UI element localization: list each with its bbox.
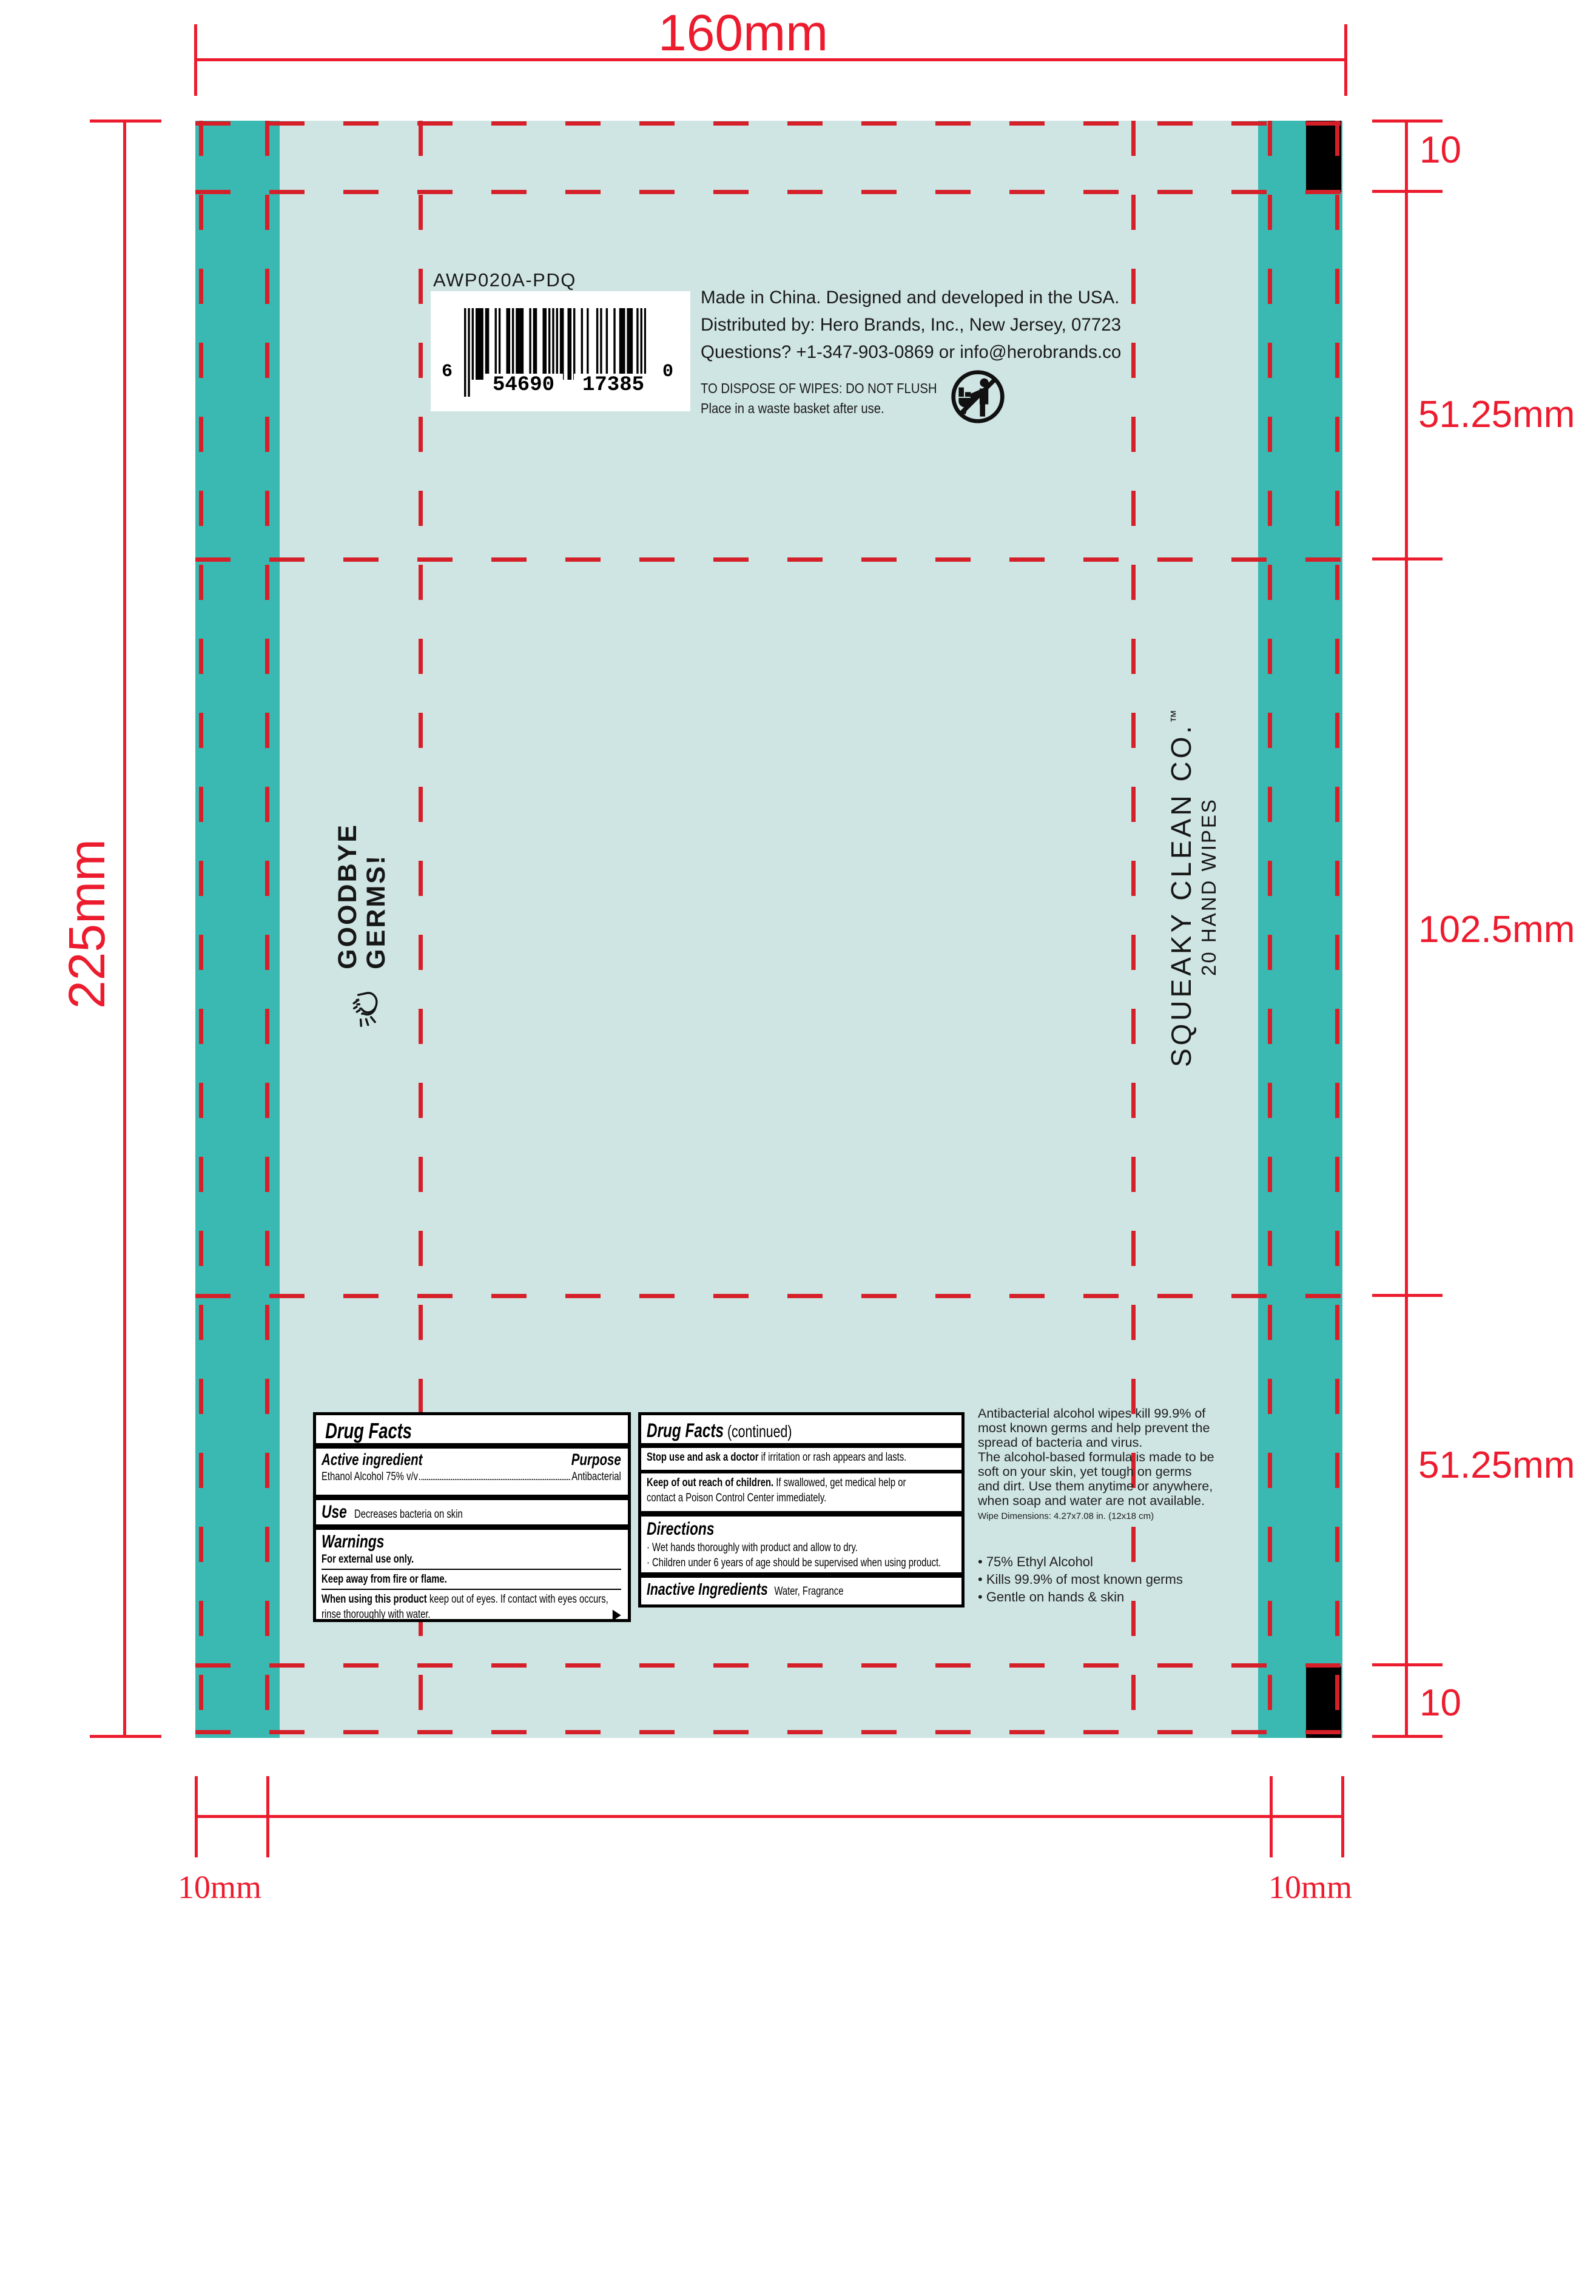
marketing-paragraphs: Antibacterial alcohol wipes kill 99.9% o… xyxy=(978,1406,1263,1508)
warning-eyes-line-1: When using this product keep out of eyes… xyxy=(322,1592,621,1607)
disposal-note: TO DISPOSE OF WIPES: DO NOT FLUSH Place … xyxy=(701,379,992,419)
inactive-ingredients-value: Water, Fragrance xyxy=(774,1584,843,1599)
marketing-copy: Antibacterial alcohol wipes kill 99.9% o… xyxy=(978,1406,1263,1606)
brand-lockup: SQUEAKY CLEAN CO.™ 20 HAND WIPES xyxy=(1163,772,1217,1002)
zone-tick-4 xyxy=(1372,1663,1443,1666)
inactive-ingredients-heading: Inactive Ingredients xyxy=(647,1580,768,1599)
tagline-line-2: GERMS! xyxy=(362,823,391,969)
section-divider xyxy=(316,1524,628,1530)
continued-arrow-icon: ▶ xyxy=(613,1607,621,1622)
directions-heading: Directions xyxy=(647,1518,955,1540)
fold-line-left-gusset xyxy=(265,121,269,1738)
keep-out-of-reach-section: Keep of out reach of children. If swallo… xyxy=(641,1473,961,1511)
do-not-flush-icon xyxy=(949,368,1007,426)
cut-line-top-edge xyxy=(195,121,1342,126)
purpose-value: Antibacterial xyxy=(571,1469,621,1484)
zone-label-top-seal: 10 xyxy=(1419,129,1461,172)
width-dimension-tick-right xyxy=(1344,24,1347,96)
clapping-hands-icon xyxy=(334,980,390,1029)
feature-bullet-2: • Kills 99.9% of most known germs xyxy=(978,1571,1263,1588)
bottom-tick-2 xyxy=(1270,1776,1273,1857)
distribution-line-2: Distributed by: Hero Brands, Inc., New J… xyxy=(701,311,1174,338)
barcode-group2: 17385 xyxy=(574,374,653,397)
height-dimension-tick-bottom xyxy=(90,1735,161,1738)
dieline-sheet: 160mm 225mm 10 51.25mm 102.5mm 51.25mm 1… xyxy=(0,0,1596,2296)
fold-line-right-gusset xyxy=(1268,121,1272,1738)
use-heading: Use xyxy=(322,1502,347,1523)
zone-label-bottom-seal: 10 xyxy=(1419,1682,1461,1725)
drug-facts-continued-panel: Drug Facts (continued) Stop use and ask … xyxy=(638,1412,965,1608)
section-divider xyxy=(641,1572,961,1578)
zone-tick-2 xyxy=(1372,557,1443,561)
directions-section: Directions · Wet hands thoroughly with p… xyxy=(641,1517,961,1572)
cut-line-right-edge xyxy=(1335,121,1339,1738)
brand-name: SQUEAKY CLEAN CO.™ xyxy=(1160,707,1197,1067)
height-dimension-tick-top xyxy=(90,120,161,123)
wipe-dimensions-note: Wipe Dimensions: 4.27x7.08 in. (12x18 cm… xyxy=(978,1511,1263,1521)
height-dimension-label: 225mm xyxy=(58,833,112,1015)
zone-tick-1 xyxy=(1372,190,1443,193)
active-ingredient-value: Ethanol Alcohol 75% v/v xyxy=(322,1469,418,1484)
brand-count: 20 HAND WIPES xyxy=(1197,798,1221,976)
barcode: 6 54690 17385 0 xyxy=(431,291,690,411)
zone-tick-5 xyxy=(1372,1735,1443,1738)
fold-line-front-bottom xyxy=(195,1294,1342,1298)
warnings-heading: Warnings xyxy=(322,1532,621,1552)
bottom-tick-1 xyxy=(266,1776,269,1857)
drug-facts-panel: Drug Facts Active ingredient Purpose Eth… xyxy=(313,1412,631,1622)
drug-facts-continued-title: Drug Facts (continued) xyxy=(641,1415,961,1443)
distribution-info: Made in China. Designed and developed in… xyxy=(701,284,1174,366)
width-dimension-line xyxy=(195,58,1346,61)
zone-label-back: 51.25mm xyxy=(1418,393,1575,436)
warning-external: For external use only. xyxy=(322,1552,621,1567)
barcode-left-digit: 6 xyxy=(442,362,453,382)
active-ingredient-section: Active ingredient Purpose Ethanol Alcoho… xyxy=(316,1449,628,1495)
warning-divider xyxy=(322,1589,621,1590)
section-divider xyxy=(641,1511,961,1517)
stop-use-section: Stop use and ask a doctor if irritation … xyxy=(641,1448,961,1470)
zone-label-front: 102.5mm xyxy=(1418,908,1575,951)
width-dimension-label: 160mm xyxy=(658,4,828,62)
active-ingredient-heading: Active ingredient xyxy=(322,1450,422,1469)
warning-fire: Keep away from fire or flame. xyxy=(322,1572,621,1587)
warning-eyes-line-2: rinse thoroughly with water. ▶ xyxy=(322,1607,621,1622)
zone-dimension-line xyxy=(1405,121,1408,1738)
use-value: Decreases bacteria on skin xyxy=(354,1507,463,1522)
bottom-margin-label-right: 10mm xyxy=(1253,1868,1368,1906)
height-dimension-line xyxy=(123,121,126,1738)
bottom-margin-label-left: 10mm xyxy=(162,1868,277,1906)
trademark-symbol: ™ xyxy=(1168,707,1183,723)
directions-item-1: · Wet hands thoroughly with product and … xyxy=(647,1540,955,1555)
zone-tick-0 xyxy=(1372,120,1443,123)
bottom-tick-3 xyxy=(1341,1776,1344,1857)
fold-line-top-seal xyxy=(195,190,1342,194)
distribution-line-3: Questions? +1-347-903-0869 or info@herob… xyxy=(701,338,1174,366)
width-dimension-tick-left xyxy=(194,24,197,96)
zone-tick-3 xyxy=(1372,1294,1443,1297)
directions-item-2: · Children under 6 years of age should b… xyxy=(647,1555,955,1571)
bottom-tick-0 xyxy=(195,1776,198,1857)
barcode-group1: 54690 xyxy=(484,374,563,397)
drug-facts-title: Drug Facts xyxy=(316,1415,628,1443)
feature-bullets: • 75% Ethyl Alcohol • Kills 99.9% of mos… xyxy=(978,1553,1263,1606)
cut-line-left-edge xyxy=(199,121,203,1738)
feature-bullet-3: • Gentle on hands & skin xyxy=(978,1588,1263,1606)
tagline-line-1: GOODBYE xyxy=(334,823,362,969)
section-divider xyxy=(641,1443,961,1448)
purpose-heading: Purpose xyxy=(571,1450,621,1469)
inactive-ingredients-section: Inactive Ingredients Water, Fragrance xyxy=(641,1578,961,1604)
feature-bullet-1: • 75% Ethyl Alcohol xyxy=(978,1553,1263,1571)
cut-line-bottom-edge xyxy=(195,1730,1342,1734)
barcode-right-digit: 0 xyxy=(662,362,673,382)
warning-divider xyxy=(322,1569,621,1570)
distribution-line-1: Made in China. Designed and developed in… xyxy=(701,284,1174,311)
bottom-dimension-line xyxy=(196,1815,1344,1818)
tagline-lockup: GOODBYE GERMS! xyxy=(332,823,392,1029)
fold-line-back-top xyxy=(195,557,1342,562)
spec-code: AWP020A-PDQ xyxy=(433,269,576,291)
dotted-leader xyxy=(419,1479,570,1480)
zone-label-bottom-panel: 51.25mm xyxy=(1418,1444,1575,1487)
use-section: Use Decreases bacteria on skin xyxy=(316,1500,628,1524)
warnings-section: Warnings For external use only. Keep awa… xyxy=(316,1530,628,1619)
section-divider xyxy=(316,1495,628,1500)
fold-line-bottom-seal xyxy=(195,1663,1342,1668)
